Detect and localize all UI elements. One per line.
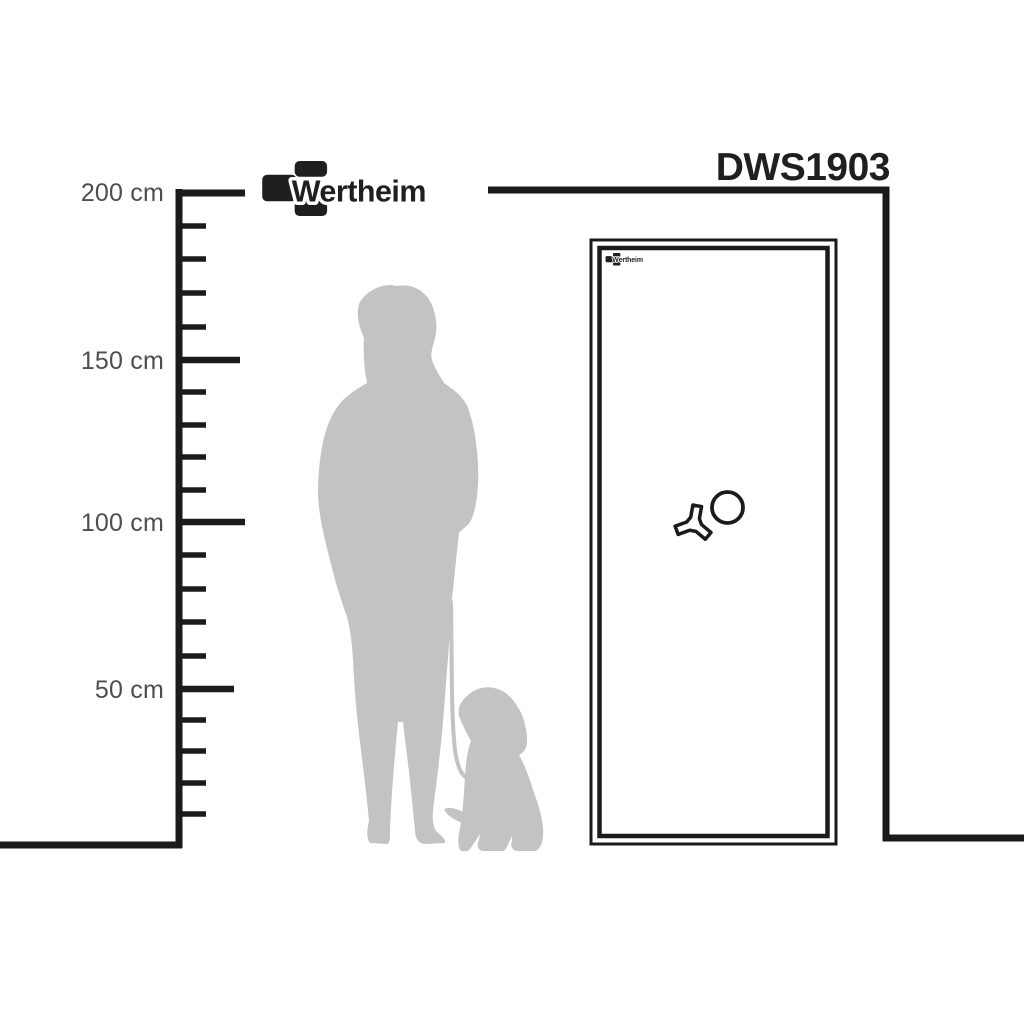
wertheim-logo: Wertheim <box>262 161 459 218</box>
size-comparison-diagram: 200 cm 150 cm 100 cm 50 cm DWS1903 Werth… <box>0 0 1024 1024</box>
round-dial-icon <box>712 492 743 523</box>
ruler-label-50: 50 cm <box>44 677 164 703</box>
woman-silhouette <box>318 285 478 844</box>
safe-door-logo-text: Wertheim <box>612 257 643 264</box>
model-label: DWS1903 <box>716 146 890 190</box>
ruler-label-200: 200 cm <box>44 180 164 206</box>
ruler-label-100: 100 cm <box>44 510 164 536</box>
ruler-label-150: 150 cm <box>44 348 164 374</box>
safe-outline <box>591 240 836 844</box>
wertheim-logo-text: Wertheim <box>292 174 426 208</box>
safe-door-logo: Wertheim <box>605 253 651 266</box>
